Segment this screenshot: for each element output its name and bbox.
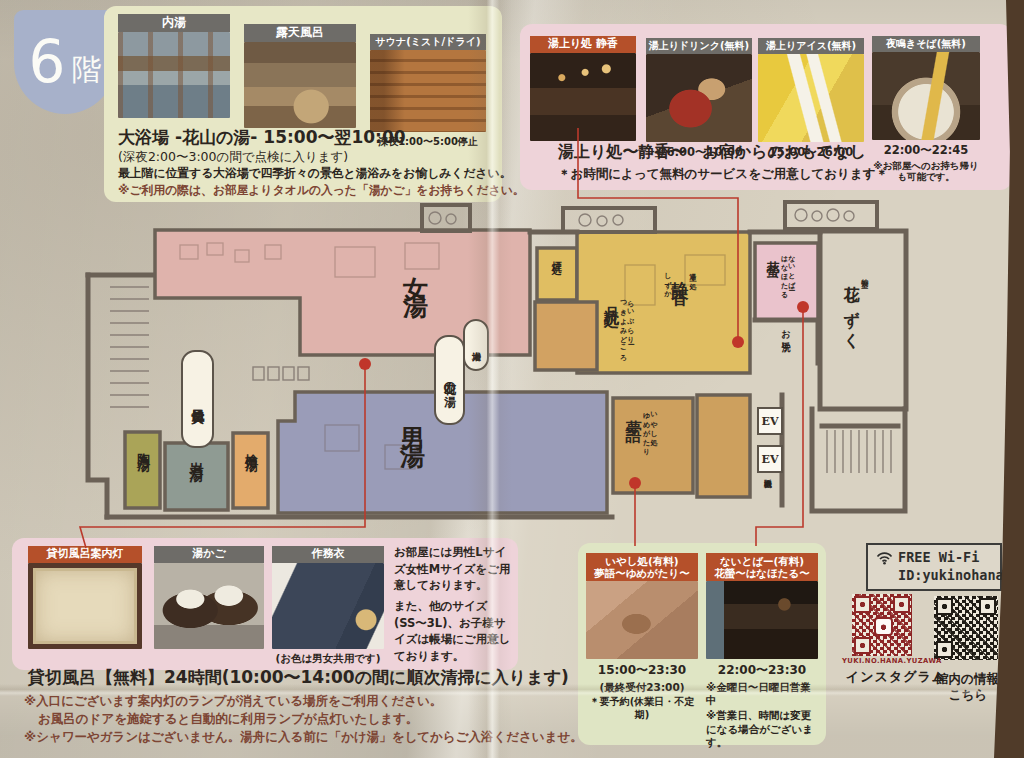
wifi-icon [876,551,893,565]
photo-label: 湯上りアイス(無料) [758,38,864,54]
soba-note: ※お部屋へのお持ち帰りも可能です。 [872,160,980,184]
photo-card-indoor-bath: 内湯 [118,14,230,118]
private-bath-tag: 貸切風呂 [181,350,214,448]
library-label: らいぶらりー つきよみどころ 月読処 [603,295,633,375]
qr-finder [893,596,910,613]
private-bath-note-2: お風呂のドアを施錠すると自動的に利用ランプが点灯いたします。 [38,711,418,728]
main-bath-desc: 最上階に位置する大浴場で四季折々の景色と湯浴みをお愉しみください。 [118,166,511,182]
wifi-line1: FREE Wi-Fi [898,549,979,567]
yuagari-section: 湯上り処 静香 湯上りドリンク(無料) 翌6:00〜10:00 湯上りアイス(無… [520,24,1012,190]
paid-card-label: いやし処(有料) 夢語〜ゆめがたり〜 [586,553,698,581]
private-bath-note-3: ※シャワーやガランはございません。湯舟に入る前に「かけ湯」をしてからご入浴くださ… [24,729,583,746]
womens-bath-label: 女湯 [399,257,432,291]
photo-label: 露天風呂 [244,24,356,42]
floor-suffix: 階 [71,50,101,91]
drink-photo [646,54,752,142]
qr-finder [936,598,953,615]
shizuka-lounge-photo [530,53,636,141]
photo-card-shizuka: 湯上り処 静香 [530,36,636,141]
paid-card-nightbar: ないとばー(有料) 花螢〜はなほたる〜 22:00〜23:30 ※金曜日〜日曜日… [706,553,818,749]
photo-label: 作務衣 [272,546,384,563]
info-qr-caption-2: こちら [936,687,1000,704]
size-note-1: お部屋には男性Lサイズ女性Mサイズをご用意しております。 [394,544,514,594]
photo-label: 夜鳴きそば(無料) [872,36,980,52]
instagram-caption: インスタグラム [846,668,946,686]
size-note-2: また、他のサイズ(SS〜3L)、お子様サイズは帳場にご用意しております。 [394,598,514,665]
qr-finder [854,637,871,654]
massage-note-2: ＊要予約(休業日・不定期) [586,696,698,721]
nightbar-label: ないとばー はなほたる 花螢 [766,250,794,316]
soba-time: 22:00〜22:45 [872,143,980,158]
soba-photo [872,52,980,140]
samue-photo [272,563,384,649]
nightbar-note-2: ※営業日、時間は変更になる場合がございます。 [706,709,818,748]
main-bath-section: 内湯 露天風呂 サウナ(ミスト/ドライ) 深夜1:00〜5:00停止 大浴場 -… [104,6,502,202]
lamp-sign-photo [28,563,142,649]
instagram-qr-code [852,594,912,656]
photo-card-samue: 作務衣 (お色は男女共用です) [272,546,384,666]
private-bath-note-1: ※入口にございます案内灯のランプが消えている場所をご利用ください。 [24,693,442,710]
paid-card-label: ないとばー(有料) 花螢〜はなほたる〜 [706,553,818,581]
photo-label: 内湯 [118,14,230,32]
kazan-no-yu-tag: 花山の湯 [434,335,465,425]
amenity-section: 貸切風呂案内灯 湯かご 作務衣 (お色は男女共用です) お部屋には男性Lサイズ女… [12,538,518,670]
private-bath-title: 貸切風呂【無料】24時間(10:00〜14:00の間に順次清掃に入ります) [28,666,569,689]
photo-card-soba: 夜鳴きそば(無料) 22:00〜22:45 ※お部屋へのお持ち帰りも可能です。 [872,36,980,183]
massage-note-1: (最終受付23:00) [586,681,698,694]
elevator-2: EV [757,445,783,473]
sauna-photo [370,50,486,132]
bath-basket-photo [154,563,264,649]
qr-finder [936,641,953,658]
indoor-bath-photo [118,32,230,118]
iwa-no-yu-label: 岩乃湯 [188,451,206,460]
openair-bath-photo [244,42,356,128]
floor-badge: 6 階 [14,10,116,114]
qr-finder [979,598,996,615]
photo-card-bath-basket: 湯かご [154,546,264,649]
shizuka-label: 湯上り処 静香 しずか [663,267,696,362]
floor-number: 6 [29,33,66,91]
elevator-1: EV [757,407,783,435]
main-bath-title: 大浴場 -花山の湯- 15:00〜翌10:00 [118,126,406,149]
photo-label: 湯上り処 静香 [530,36,636,53]
qr-finder [854,596,871,613]
hanashizuku-label: 特別室 花しずく [843,273,867,363]
samue-note: (お色は男女共用です) [272,652,384,666]
nightbar-time: 22:00〜23:30 [706,662,818,679]
nightbar-photo [706,581,818,659]
paid-facilities-section: いやし処(有料) 夢語〜ゆめがたり〜 15:00〜23:30 (最終受付23:0… [578,543,826,745]
smoking-label: 煙処 [549,253,563,261]
yuagari-subtitle: ＊お時間によって無料のサービスをご用意しております＊ [558,166,888,183]
info-qr-caption-1: 館内の情報 [936,671,999,688]
main-bath-subtitle: (深夜2:00〜3:00の間で点検に入ります) [118,149,348,166]
mens-bath-label: 男湯 [396,407,429,441]
floor-plan-walls [85,195,1010,535]
nightbar-note-1: ※金曜日〜日曜日営業中 [706,681,818,707]
yuagari-title: 湯上り処〜静香〜 お宿からのおもてなし [558,142,866,163]
hinoki-no-yu-label: 檜乃湯 [242,443,260,452]
photo-label: 湯上りドリンク(無料) [646,38,752,54]
photo-label: 湯かご [154,546,264,563]
toilet-label: お手洗い [779,323,792,348]
tou-no-yu-label: 陶乃湯 [134,443,152,452]
yumegatari-label: いやし処 ゆめがたり 夢語 [625,407,656,489]
room-library [535,302,597,370]
photo-card-openair-bath: 露天風呂 [244,24,356,128]
wifi-line2: ID:yukinohana [876,567,1000,585]
photo-label: サウナ(ミスト/ドライ) [370,34,486,50]
photo-label: 貸切風呂案内灯 [28,546,142,563]
wifi-info-box: FREE Wi-Fi ID:yukinohana [866,543,1002,591]
instagram-icon [874,617,893,636]
room-annex [697,395,750,497]
massage-time: 15:00〜23:30 [586,662,698,679]
instagram-handle: YUKI.NO.HANA.YUZAWA [842,657,942,665]
floor-plan: 女湯 男湯 大浴場 花山の湯 貸切風呂 陶乃湯 岩乃湯 檜乃湯 煙処 お手洗い … [85,195,1010,535]
paid-card-massage: いやし処(有料) 夢語〜ゆめがたり〜 15:00〜23:30 (最終受付23:0… [586,553,698,721]
daiyokujo-tag: 大浴場 [463,319,489,371]
ice-photo [758,54,864,142]
info-qr-code [934,596,998,660]
massage-photo [586,581,698,659]
photo-card-lamp-sign: 貸切風呂案内灯 [28,546,142,649]
